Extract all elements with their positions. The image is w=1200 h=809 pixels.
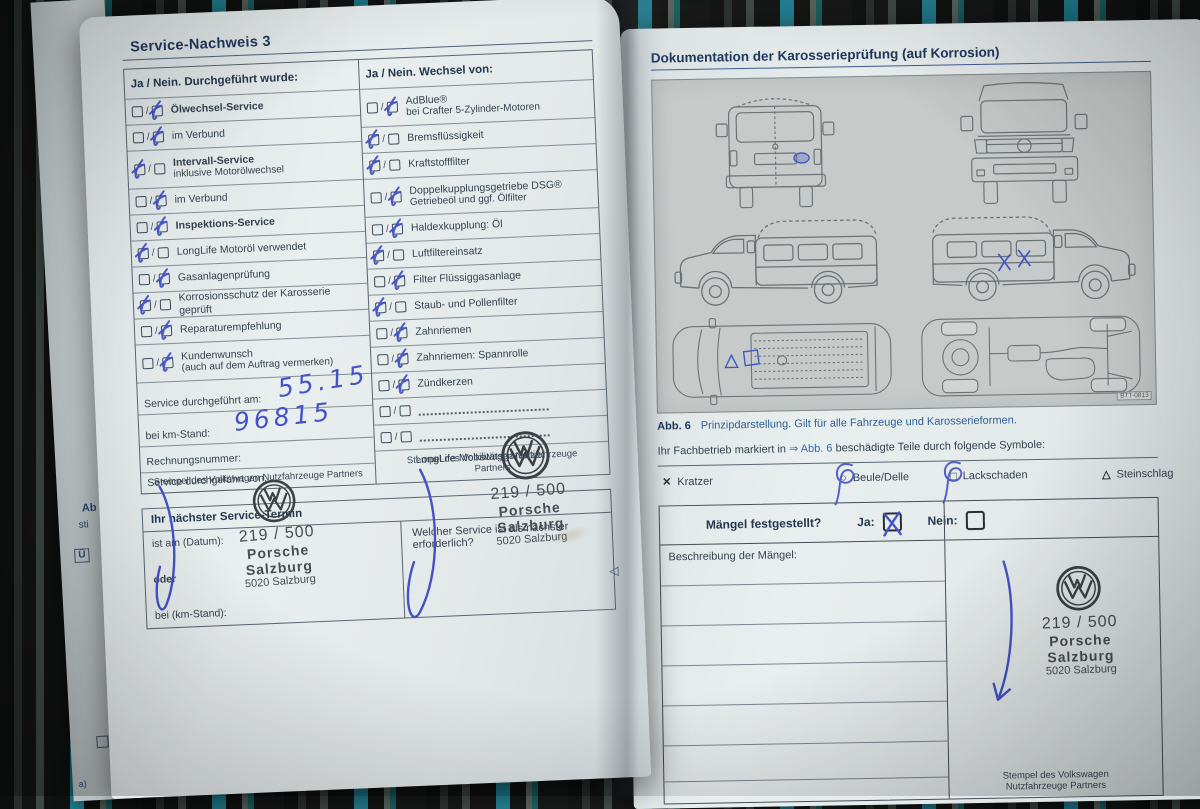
slash-separator: / — [394, 432, 397, 443]
vehicle-top-view — [665, 312, 899, 408]
checkbox-ja[interactable] — [136, 222, 147, 233]
damage-symbol-beule-delle: ○Beule/Delle — [840, 471, 909, 484]
ja-nein-checkbox-pair[interactable]: / — [136, 221, 169, 233]
handwritten-x-mark — [881, 510, 903, 536]
symbol-label: Steinschlag — [1116, 468, 1173, 481]
edge-fragment: Ab — [82, 502, 97, 515]
service-checklist-table: Ja / Nein. Durchgeführt wurde: /Ölwechse… — [123, 49, 610, 494]
handwritten-check-mark — [372, 297, 387, 320]
checklist-label: Luftfiltereinsatz — [412, 245, 483, 260]
signature — [143, 479, 195, 623]
checkbox-ja[interactable] — [377, 354, 388, 365]
handwritten-check-mark — [391, 270, 406, 293]
damage-symbol-lackschaden: □Lackschaden — [950, 469, 1028, 482]
invoice-label: Rechnungsnummer: — [146, 452, 241, 468]
body-inspection-page: Dokumentation der Karosserieprüfung (auf… — [620, 19, 1200, 809]
checkbox-nein[interactable] — [399, 405, 410, 416]
figure-code: BTT-0813 — [1117, 391, 1152, 401]
damage-symbol-kratzer: ✕Kratzer — [662, 475, 713, 489]
handwritten-check-mark — [395, 374, 410, 397]
defects-yes-label: Ja: — [857, 515, 875, 529]
ja-nein-checkbox-pair[interactable]: / — [375, 301, 408, 313]
damage-mark-x — [1018, 250, 1030, 267]
slash-separator: / — [152, 248, 155, 259]
handwritten-check-mark — [149, 126, 164, 149]
defects-yes-checkbox[interactable] — [882, 512, 901, 531]
symbol-glyph: □ — [950, 470, 957, 482]
ja-nein-checkbox-pair[interactable]: / — [138, 247, 171, 259]
checkbox-ja[interactable] — [378, 380, 389, 391]
checklist-label: im Verbund — [172, 128, 226, 142]
slash-separator: / — [389, 302, 392, 313]
handwritten-check-mark — [148, 100, 163, 123]
checklist-label: Bremsflüssigkeit — [407, 129, 484, 144]
defects-table: Mängel festgestellt? Ja: Nein: Beschreib… — [659, 497, 1164, 805]
damage-symbols-legend: ✕Kratzer○Beule/Delle□Lackschaden△Steinsc… — [658, 463, 1158, 498]
checklist-label: Filter Flüssiggasanlage — [413, 270, 521, 287]
symbol-label: Beule/Delle — [853, 471, 909, 484]
ja-nein-checkbox-pair[interactable]: / — [379, 405, 412, 417]
page-nav-marker: ◁ — [609, 564, 619, 578]
checkbox-ja[interactable] — [141, 326, 152, 337]
handwritten-check-mark — [393, 322, 408, 345]
checkbox-nein[interactable] — [395, 301, 406, 312]
handwritten-check-mark — [370, 245, 385, 268]
checkbox-ja[interactable] — [133, 132, 144, 143]
edge-checkbox — [96, 735, 109, 748]
damage-mark-triangle — [725, 355, 737, 367]
checklist-label: Zündkerzen — [417, 376, 473, 390]
edge-fragment: a) — [78, 779, 87, 789]
slash-separator: / — [148, 164, 151, 175]
km-label: bei km-Stand: — [145, 428, 210, 443]
ja-nein-checkbox-pair[interactable]: / — [377, 353, 410, 365]
checkbox-nein[interactable] — [154, 163, 165, 174]
handwritten-check-mark — [383, 96, 398, 119]
checklist-label: Zahnriemen: Spannrolle — [416, 348, 528, 365]
signature — [390, 464, 461, 635]
ja-nein-checkbox-pair[interactable]: / — [369, 159, 402, 171]
ja-nein-checkbox-pair[interactable]: / — [141, 325, 174, 337]
ja-nein-checkbox-pair[interactable]: / — [140, 299, 173, 311]
checkbox-ja[interactable] — [370, 192, 381, 203]
handwritten-check-mark — [389, 218, 404, 241]
symbols-intro: Ihr Fachbetrieb markiert in ⇒ Abb. 6 bes… — [657, 436, 1157, 467]
edge-fragment: Ü — [74, 548, 90, 563]
checkbox-nein[interactable] — [400, 431, 411, 442]
handwritten-check-mark — [155, 268, 170, 291]
slash-separator: / — [154, 300, 157, 311]
handwritten-check-mark — [365, 129, 380, 152]
checkbox-ja[interactable] — [379, 406, 390, 417]
checkbox-ja[interactable] — [132, 106, 143, 117]
checkbox-nein[interactable] — [389, 159, 400, 170]
vehicle-front-view — [923, 78, 1125, 207]
intro-pre: Ihr Fachbetrieb markiert in — [658, 443, 790, 457]
checkbox-ja[interactable] — [376, 328, 387, 339]
vehicle-diagram-panel: BTT-0813 — [651, 71, 1157, 414]
ja-nein-checkbox-pair[interactable]: / — [133, 131, 166, 143]
defects-no-checkbox[interactable] — [965, 510, 984, 529]
checkbox-ja[interactable] — [139, 274, 150, 285]
checklist-label: Staub- und Pollenfilter — [414, 296, 518, 312]
figure-caption-label: Abb. 6 — [657, 420, 691, 433]
handwritten-check-mark — [131, 159, 146, 182]
handwritten-check-mark — [158, 320, 173, 343]
dealer-stamp: 219 / 500 Porsche Salzburg 5020 Salzburg — [198, 472, 356, 593]
damage-symbol-steinschlag: △Steinschlag — [1102, 467, 1174, 481]
handwritten-check-mark — [152, 190, 167, 213]
ja-nein-checkbox-pair[interactable]: / — [370, 191, 403, 203]
handwritten-check-mark — [387, 186, 402, 209]
handwritten-check-mark — [134, 243, 149, 266]
checkbox-nein[interactable] — [393, 249, 404, 260]
handwritten-check-mark — [159, 352, 174, 375]
figure-caption-text: Prinzipdarstellung. Gilt für alle Fahrze… — [701, 414, 1017, 432]
edge-fragment: sti — [78, 519, 89, 531]
dealer-stamp: 219 / 500 Porsche Salzburg 5020 Salzburg — [1003, 562, 1157, 679]
checklist-label: Inspektions-Service — [175, 216, 275, 232]
handwritten-check-mark — [394, 348, 409, 371]
checkbox-ja[interactable] — [367, 102, 378, 113]
defects-description-label: Beschreibung der Mängel: — [668, 549, 797, 563]
defects-description-cell[interactable]: Beschreibung der Mängel: — [660, 541, 948, 804]
ja-nein-checkbox-pair[interactable]: / — [135, 195, 168, 207]
slash-separator: / — [393, 406, 396, 417]
ja-nein-checkbox-pair[interactable]: / — [139, 273, 172, 285]
checklist-label: Haldexkupplung: Öl — [411, 219, 503, 235]
handwritten-check-mark — [366, 155, 381, 178]
checkbox-nein[interactable] — [157, 247, 168, 258]
slash-separator: / — [382, 134, 385, 145]
ja-nein-checkbox-pair[interactable]: / — [374, 275, 407, 287]
checkbox-ja[interactable] — [372, 224, 383, 235]
checklist-label: Kraftstofffilter — [408, 156, 470, 171]
symbol-label: Lackschaden — [963, 469, 1028, 482]
vehicle-side-view-right — [910, 204, 1148, 308]
page-title: Dokumentation der Karosserieprüfung (auf… — [651, 42, 1151, 71]
defects-stamp-cell: 219 / 500 Porsche Salzburg 5020 Salzburg… — [944, 537, 1163, 799]
checklist-label: im Verbund — [174, 192, 228, 206]
vehicle-side-view-left — [661, 208, 899, 312]
ja-nein-checkbox-pair[interactable]: / — [373, 249, 406, 261]
checkbox-ja[interactable] — [380, 432, 391, 443]
vehicle-underbody-view — [914, 308, 1148, 404]
ja-nein-checkbox-pair[interactable]: / — [376, 327, 409, 339]
checkbox-ja[interactable] — [142, 358, 153, 369]
checklist-label: Zahnriemen — [415, 324, 471, 338]
ja-nein-checkbox-pair[interactable]: / — [380, 431, 413, 443]
ja-nein-checkbox-pair[interactable]: / — [378, 379, 411, 391]
checklist-label: LongLife Motoröl verwendet — [177, 241, 307, 258]
symbol-label: Kratzer — [677, 476, 713, 489]
checklist-label: Intervall-Serviceinklusive Motorölwechse… — [173, 152, 284, 180]
figure-reference-link[interactable]: ⇒ Abb. 6 — [789, 443, 833, 456]
checklist-label: Ölwechsel-Service — [171, 100, 264, 116]
defects-question: Mängel festgestellt? — [706, 516, 822, 532]
symbol-glyph: ✕ — [662, 476, 671, 488]
blank-dotted-line[interactable] — [418, 399, 548, 415]
ja-nein-checkbox-pair[interactable]: / — [134, 163, 167, 175]
checklist-label: Gasanlagenprüfung — [178, 268, 271, 284]
checklist-label: AdBlue®bei Crafter 5-Zylinder-Motoren — [405, 89, 540, 118]
checklist-label: Reparaturempfehlung — [180, 320, 282, 336]
checkbox-nein[interactable] — [160, 299, 171, 310]
handwritten-check-mark — [137, 295, 152, 318]
defects-no-label: Nein: — [927, 513, 957, 528]
vw-logo-icon — [1054, 563, 1104, 613]
slash-separator: / — [383, 160, 386, 171]
ja-nein-checkbox-pair[interactable]: / — [132, 105, 165, 117]
intro-post: beschädigte Teile durch folgende Symbole… — [832, 439, 1045, 455]
checkbox-nein[interactable] — [388, 133, 399, 144]
ja-nein-checkbox-pair[interactable]: / — [368, 133, 401, 145]
ja-nein-checkbox-pair[interactable]: / — [372, 223, 405, 235]
slash-separator: / — [387, 250, 390, 261]
service-record-page: Service-Nachweis 3 Ja / Nein. Durchgefüh… — [79, 0, 651, 799]
vw-logo-icon — [249, 476, 298, 525]
ja-nein-checkbox-pair[interactable]: / — [367, 101, 400, 113]
checklist-label: Doppelkupplungsgetriebe DSG®Getriebeöl u… — [409, 178, 562, 208]
damage-mark-circle — [794, 153, 809, 163]
vehicle-rear-view — [679, 83, 871, 212]
handwritten-check-mark — [153, 216, 168, 239]
symbol-glyph: △ — [1102, 469, 1111, 481]
figure-caption: Abb. 6Prinzipdarstellung. Gilt für alle … — [657, 412, 1157, 433]
stamp-caption: Stempel des Volkswagen Nutzfahrzeuge Par… — [949, 768, 1162, 794]
symbol-glyph: ○ — [840, 472, 847, 484]
checkbox-ja[interactable] — [135, 196, 146, 207]
checkbox-ja[interactable] — [374, 276, 385, 287]
ja-nein-checkbox-pair[interactable]: / — [142, 357, 175, 369]
